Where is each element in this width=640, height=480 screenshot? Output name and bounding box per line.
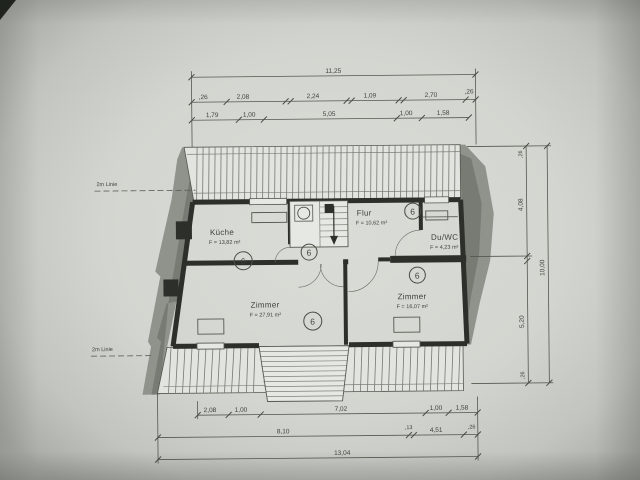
room-area-kueche: F = 13,82 m² (209, 240, 241, 246)
dim-top-r2-5: 2,70 (425, 92, 438, 99)
room-name-flur: Flur (357, 209, 372, 218)
room-number-zimmer-right: 6 (415, 271, 420, 281)
dormer-window-left (197, 319, 224, 349)
door-arc-zimmer-left-1 (298, 264, 321, 287)
dim-right-1: ,26 (518, 150, 524, 158)
roof-window-kueche (250, 198, 287, 222)
room-area-duwc: F = 4,23 m² (430, 245, 458, 251)
dim-top-r3-5: 1,58 (437, 110, 450, 117)
room-name-zimmer-left: Zimmer (251, 300, 280, 309)
dim-top-r2-4: 1,09 (364, 92, 377, 99)
dim-top-r3-4: 1,00 (400, 110, 413, 117)
roof-hatch-top (184, 145, 460, 201)
room-name-duwc: Du/WC (431, 233, 458, 242)
room-zimmer-right: Zimmer F = 16,07 m² 6 (396, 267, 428, 310)
dim-bot-r2-1: 8,10 (277, 428, 290, 435)
room-number-zimmer-left: 6 (310, 317, 315, 327)
dim-top-r2-2: 2,08 (237, 94, 250, 101)
door-arc-zimmer-right (348, 261, 378, 291)
door-arc-zimmer-left-2 (320, 264, 343, 287)
dim-top-total: 11,25 (325, 68, 341, 75)
floor-plan-svg: Küche F = 13,82 m² 6 Flur F = 10,62 m² 6… (0, 0, 640, 480)
dim-right-total: 10,00 (539, 259, 546, 276)
room-duwc: Du/WC F = 4,23 m² (430, 233, 459, 251)
dim-top-r3-3: 5,05 (323, 111, 336, 118)
staircase-bottom (259, 346, 350, 402)
room-area-zimmer-left: F = 27,91 m² (250, 312, 282, 318)
dim-bot-r1-5: 1,58 (456, 405, 469, 412)
floor-plan-drawing: Küche F = 13,82 m² 6 Flur F = 10,62 m² 6… (0, 0, 640, 480)
dim-right-2: 4,08 (518, 198, 525, 211)
dim-bot-r1-1: 2,08 (204, 407, 217, 414)
height-line-bottom-label: 2m Linie (92, 347, 113, 353)
room-number-kueche: 6 (241, 256, 246, 266)
dim-top-r2-1: ,26 (199, 94, 208, 101)
dim-bot-r1-4: 1,00 (430, 405, 443, 412)
height-line-bottom: 2m Linie (91, 347, 153, 357)
dim-right-4: ,26 (520, 371, 526, 379)
dim-bot-r1-2: 1,00 (235, 407, 248, 414)
chimney-block-upper (176, 221, 192, 239)
dim-top-r2-3: 2,24 (307, 93, 320, 100)
dim-bot-r2-4: ,26 (468, 425, 476, 431)
height-line-top-label: 2m Linie (96, 182, 117, 188)
chimney-block-lower (163, 279, 178, 296)
stair-core (290, 201, 348, 248)
dim-right-3: 5,20 (519, 315, 526, 328)
room-number-flur: 6 (307, 248, 312, 258)
dim-top-r3-1: 1,79 (206, 112, 219, 119)
room-name-zimmer-right: Zimmer (398, 292, 427, 301)
room-area-flur: F = 10,62 m² (356, 220, 388, 226)
stair-solid-mark (325, 204, 334, 213)
floor-plan-photo: Küche F = 13,82 m² 6 Flur F = 10,62 m² 6… (0, 0, 640, 480)
dim-top-r3-2: 1,00 (243, 112, 256, 119)
dormer-window-right (393, 317, 420, 347)
dim-bottom-total: 13,04 (334, 450, 351, 457)
dim-bot-r2-3: 4,51 (430, 427, 443, 434)
room-area-zimmer-right: F = 16,07 m² (397, 304, 429, 310)
dim-top-r2-6: ,26 (465, 89, 474, 96)
room-zimmer-left: Zimmer F = 27,91 m² 6 (250, 300, 322, 331)
dimension-top: 11,25 ,26 2,08 2,24 1,09 2,70 ,26 1,79 1… (188, 66, 479, 147)
dim-bot-r1-3: 7,02 (335, 406, 348, 413)
room-number-hall: 6 (410, 207, 415, 217)
room-name-kueche: Küche (210, 228, 235, 237)
door-arc-duwc (395, 230, 421, 256)
dim-bot-r2-2: ,13 (405, 425, 413, 431)
